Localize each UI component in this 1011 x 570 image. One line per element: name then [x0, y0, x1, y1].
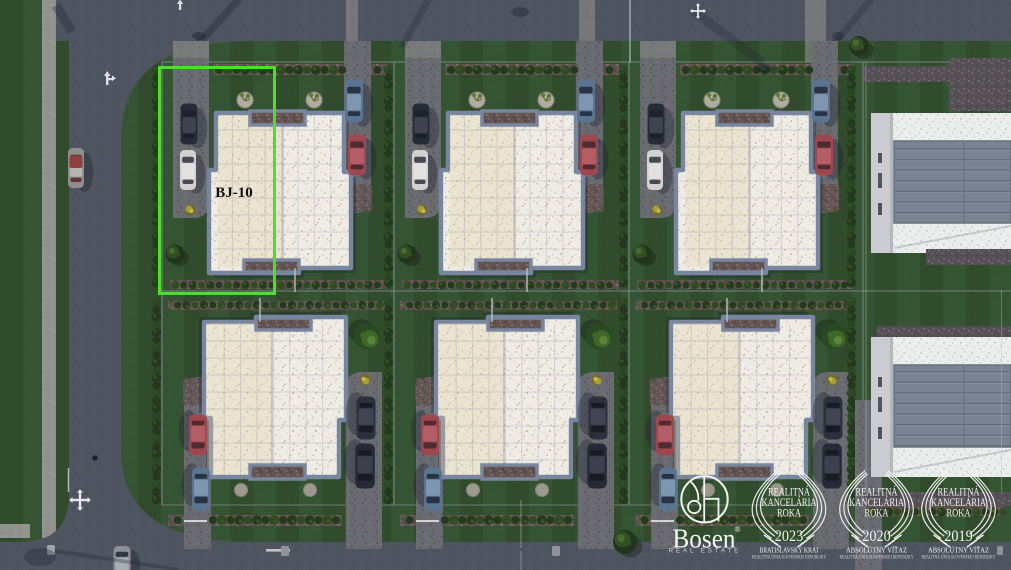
svg-text:ABSOLÚTNY VÍŤAZ: ABSOLÚTNY VÍŤAZ: [928, 545, 989, 555]
svg-text:ROKA: ROKA: [777, 508, 802, 520]
svg-text:ROKA: ROKA: [947, 508, 972, 520]
svg-text:2023: 2023: [775, 528, 804, 545]
svg-text:REALITNÁ ÚNIA SLOVENSKEJ REPUB: REALITNÁ ÚNIA SLOVENSKEJ REPUBLIKY: [922, 555, 996, 561]
svg-text:ROKA: ROKA: [865, 508, 890, 520]
svg-text:REALITNÁ ÚNIA SLOVENSKEJ REPUB: REALITNÁ ÚNIA SLOVENSKEJ REPUBLIKY: [752, 555, 826, 561]
svg-text:2019: 2019: [944, 528, 973, 545]
svg-text:REALITNÁ ÚNIA SLOVENSKEJ REPUB: REALITNÁ ÚNIA SLOVENSKEJ REPUBLIKY: [840, 555, 914, 561]
svg-text:ABSOLÚTNY VÍŤAZ: ABSOLÚTNY VÍŤAZ: [846, 545, 907, 555]
svg-text:BRATISLAVSKÝ KRAJ: BRATISLAVSKÝ KRAJ: [760, 545, 819, 555]
svg-text:2020: 2020: [862, 528, 891, 545]
svg-text:BJ-10: BJ-10: [215, 185, 253, 201]
svg-text:®: ®: [734, 525, 740, 534]
svg-text:REAL ESTATE: REAL ESTATE: [669, 549, 742, 555]
